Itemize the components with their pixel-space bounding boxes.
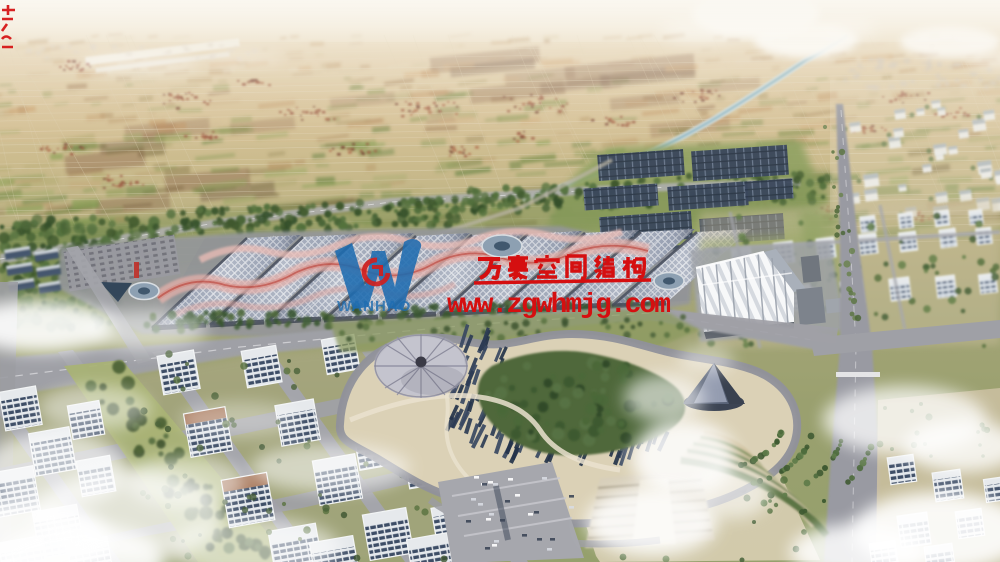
svg-text:www.zgwhmjg.com: www.zgwhmjg.com <box>447 290 670 321</box>
svg-text:WANHAO: WANHAO <box>337 298 411 315</box>
